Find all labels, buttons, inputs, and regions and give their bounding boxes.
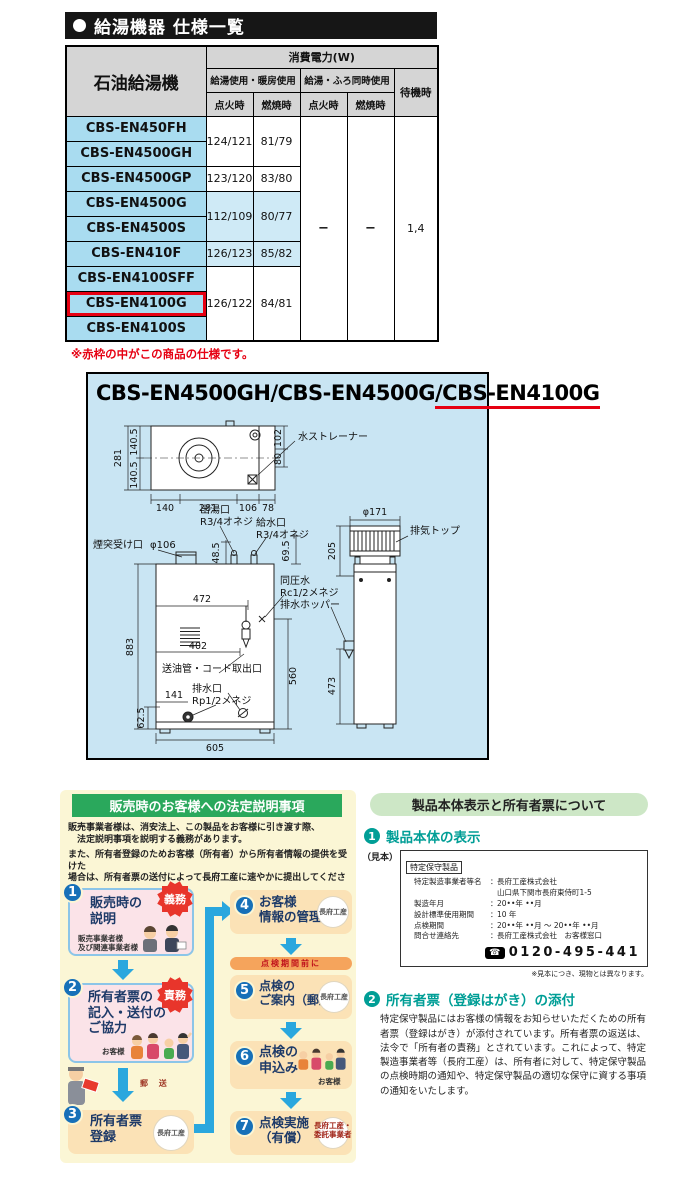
dim-102: 102 [273, 429, 284, 447]
product-label-plate: 特定保守製品 特定製造事業者等名：長府工産株式会社 山口県下関市長府東侍町1-5… [400, 850, 648, 967]
subsection-2-number: 2 [364, 991, 380, 1007]
spec-section-title: 給湯機器 仕様一覧 [94, 13, 245, 38]
step-2-title: 所有者票の 記入・送付の ご協力 [88, 990, 166, 1037]
chofu-kosan-badge: 長府工産 [154, 1116, 188, 1150]
spec-title-bar: 給湯機器 仕様一覧 [65, 12, 437, 39]
cell-dash: − [300, 116, 347, 341]
label-drain-hopper: 排水ホッパー [280, 598, 340, 611]
legal-explanation-panel: 販売時のお客様への法定説明事項 販売事業者様は、消安法上、この製品をお客様に引き… [60, 790, 356, 1163]
step-2-number: 2 [62, 977, 83, 998]
label-drain-thread: Rp1/2メネジ [192, 695, 251, 707]
dim-605: 605 [206, 743, 224, 754]
dimension-drawing: 281 140.5 140.5 102 80 140 281 106 78 水ス… [88, 414, 489, 759]
col-ignition-1: 点火時 [206, 92, 253, 116]
plate-field-value: 長府工産株式会社 お客様窓口 [497, 931, 642, 942]
model-name: CBS-EN4500G [66, 191, 206, 216]
step-4-number: 4 [234, 895, 255, 916]
owner-card-section: 製品本体表示と所有者票について 1 製品本体の表示 （見本） 特定保守製品 特定… [362, 793, 649, 1099]
dim-883: 883 [125, 638, 136, 656]
family-illustration [296, 1045, 348, 1075]
dim-140-5-a: 140.5 [129, 428, 140, 455]
cell-dash: − [347, 116, 394, 341]
label-drain-outlet: 排水口 [192, 682, 222, 695]
label-chimney-diameter: φ106 [150, 540, 176, 551]
step-6-number: 6 [234, 1046, 255, 1067]
dim-69-5: 69.5 [281, 540, 292, 561]
cell-value: 123/120 [206, 166, 253, 191]
label-water-inlet: 給水口 [256, 516, 286, 529]
plate-field-key: 特定製造事業者等名 [414, 877, 490, 888]
col-group1: 給湯使用・暖房使用 [206, 68, 300, 92]
spec-note: ※赤枠の中がこの商品の仕様です。 [65, 346, 437, 362]
step-3-number: 3 [62, 1104, 83, 1125]
step-3-title: 所有者票 登録 [90, 1114, 142, 1145]
step-4-box: 4 お客様 情報の管理 長府工産 [230, 890, 352, 934]
step-6-caption: お客様 [318, 1077, 341, 1086]
phone-number: 0120-495-441 [509, 945, 640, 960]
label-hot-water-outlet: 出湯口 [200, 503, 230, 516]
cell-standby-value: 1,4 [394, 116, 438, 341]
people-illustration [136, 924, 190, 954]
step-4-title: お客様 情報の管理 [259, 894, 322, 924]
model-name-highlighted: CBS-EN4100G [66, 291, 206, 316]
cell-value: 83/80 [253, 166, 300, 191]
step-1-caption: 販売事業者様 及び関連事業者様 [78, 934, 138, 953]
owner-subsection-1-heading: 1 製品本体の表示 [364, 826, 649, 846]
mail-send-label: 郵 送 [140, 1078, 171, 1089]
bullet-icon [73, 19, 86, 32]
step-1-title: 販売時の 説明 [90, 896, 142, 927]
dim-140-5-b: 140.5 [129, 461, 140, 488]
dim-560: 560 [288, 667, 299, 685]
step-1-number: 1 [62, 882, 83, 903]
plate-field-value: 20••年 ••月 ～ 20••年 ••月 [497, 921, 642, 932]
chofu-kosan-badge: 長府工産 [319, 982, 349, 1012]
arrow-down-mail-icon [112, 1068, 134, 1102]
plate-field-value: 10 年 [497, 910, 642, 921]
owner-section-title: 製品本体表示と所有者票について [370, 793, 648, 816]
dim-78: 78 [262, 503, 274, 514]
family-illustration [128, 1031, 192, 1063]
dim-205: 205 [327, 542, 338, 560]
specified-maintenance-product-tag: 特定保守製品 [406, 861, 462, 874]
diagram-title-plain: CBS-EN4500GH/CBS-EN4500G [96, 381, 435, 405]
model-name: CBS-EN450FH [66, 116, 206, 141]
plate-field-sep [490, 888, 497, 899]
dim-106: 106 [239, 503, 257, 514]
label-water-strainer: 水ストレーナー [298, 431, 368, 443]
plate-field-key: 製造年月 [414, 899, 490, 910]
before-inspection-bar: 点検期間前に [230, 957, 352, 970]
spec-section: 給湯機器 仕様一覧 石油給湯機 消費電力(W) 給湯使用・暖房使用 給湯・ふろ同… [65, 12, 437, 362]
model-name: CBS-EN410F [66, 241, 206, 266]
dimension-diagram-panel: CBS-EN4500GH/CBS-EN4500G/CBS-EN4100G [86, 372, 489, 760]
dim-473: 473 [327, 677, 338, 695]
sample-label: （見本） [362, 850, 398, 863]
dim-402: 402 [189, 641, 207, 652]
plate-field-key: 点検期間 [414, 921, 490, 932]
arrow-down-icon [280, 938, 302, 954]
arrow-down-icon [112, 960, 134, 980]
step-6-title: 点検の 申込み [259, 1045, 298, 1076]
dim-141: 141 [165, 690, 183, 701]
col-standby: 待機時 [394, 68, 438, 116]
step-6-box: 6 点検の 申込み お客様 [230, 1041, 352, 1089]
label-equal-pressure-thread: Rc1/2メネジ [280, 587, 339, 599]
table-row: CBS-EN450FH 124/121 81/79 − − 1,4 [66, 116, 438, 141]
plate-field-sep: ： [490, 910, 497, 921]
subsection-2-title: 所有者票（登録はがき）の添付 [386, 989, 575, 1009]
step-2-caption: お客様 [102, 1047, 125, 1056]
plate-field-sep: ： [490, 899, 497, 910]
flow-connector [205, 907, 222, 916]
dim-phi-171: φ171 [363, 507, 387, 518]
col-power: 消費電力(W) [206, 46, 438, 68]
plate-field-value: 山口県下関市長府東侍町1-5 [497, 888, 642, 899]
plate-field-sep: ： [490, 877, 497, 888]
step-5-number: 5 [234, 980, 255, 1001]
step-7-org-caption: 長府工産・ 委託事業者 [314, 1121, 352, 1140]
model-name: CBS-EN4100SFF [66, 266, 206, 291]
legal-panel-title: 販売時のお客様への法定説明事項 [72, 794, 342, 817]
dim-140: 140 [156, 503, 174, 514]
cell-value: 81/79 [253, 116, 300, 166]
cell-value: 112/109 [206, 191, 253, 241]
label-chimney-port: 煙突受け口 [93, 538, 143, 551]
label-inlet-thread: R3/4オネジ [256, 529, 309, 541]
plate-field-sep: ： [490, 921, 497, 932]
plate-field-value: 20••年 ••月 [497, 899, 642, 910]
col-product: 石油給湯機 [66, 46, 206, 116]
model-name: CBS-EN4100S [66, 316, 206, 341]
label-exhaust-top: 排気トップ [410, 524, 460, 537]
cell-value: 80/77 [253, 191, 300, 241]
plate-field-sep: ： [490, 931, 497, 942]
cell-value: 85/82 [253, 241, 300, 266]
step-5-box: 5 点検の ご案内（郵送） 長府工産 [230, 975, 352, 1019]
phone-row: ☎ 0120-495-441 [406, 945, 642, 960]
arrow-down-icon [280, 1022, 302, 1038]
model-name: CBS-EN4500GH [66, 141, 206, 166]
model-name: CBS-EN4500S [66, 216, 206, 241]
dim-80: 80 [273, 453, 284, 465]
step-3-box: 所有者票 登録 長府工産 [68, 1110, 194, 1154]
plate-field-value: 長府工産株式会社 [497, 877, 642, 888]
dim-472: 472 [193, 594, 211, 605]
dim-48-5: 48.5 [211, 542, 222, 563]
cell-value: 126/122 [206, 266, 253, 341]
step-7-title: 点検実施 （有償） [259, 1115, 309, 1145]
label-outlet-thread: R3/4オネジ [200, 516, 253, 528]
diagram-title: CBS-EN4500GH/CBS-EN4500G/CBS-EN4100G [88, 374, 487, 405]
cell-value: 84/81 [253, 266, 300, 341]
step-7-number: 7 [234, 1116, 255, 1137]
obligation-badge: 義務 [158, 882, 192, 916]
plate-field-key: 設計標準使用期間 [414, 910, 490, 921]
col-ignition-2: 点火時 [300, 92, 347, 116]
model-name: CBS-EN4500GP [66, 166, 206, 191]
diagram-title-highlight: /CBS-EN4100G [435, 381, 600, 409]
plate-fields: 特定製造事業者等名：長府工産株式会社 山口県下関市長府東侍町1-5 製造年月：2… [414, 877, 642, 942]
dim-62-5: 62.5 [136, 707, 147, 728]
cell-value: 124/121 [206, 116, 253, 166]
dim-281: 281 [113, 449, 124, 467]
chofu-kosan-badge: 長府工産 [318, 897, 348, 927]
owner-card-description: 特定保守製品にはお客様の情報をお知らせいただくための所有者票（登録はがき）が添付… [380, 1013, 646, 1099]
product-spec-page: 給湯機器 仕様一覧 石油給湯機 消費電力(W) 給湯使用・暖房使用 給湯・ふろ同… [0, 0, 700, 1200]
flow-connector [205, 907, 214, 1133]
plate-field-key [414, 888, 490, 899]
col-burning-2: 燃焼時 [347, 92, 394, 116]
spec-table: 石油給湯機 消費電力(W) 給湯使用・暖房使用 給湯・ふろ同時使用 待機時 点火… [65, 45, 439, 342]
cell-value: 126/123 [206, 241, 253, 266]
label-oil-pipe-cord-outlet: 送油管・コード取出口 [162, 662, 262, 675]
badge-label: 責務 [158, 978, 192, 1012]
arrow-down-icon [280, 1092, 302, 1108]
plate-field-key: 問合せ連絡先 [414, 931, 490, 942]
subsection-1-title: 製品本体の表示 [386, 826, 481, 846]
col-burning-1: 燃焼時 [253, 92, 300, 116]
owner-subsection-2-heading: 2 所有者票（登録はがき）の添付 [364, 989, 649, 1009]
badge-label: 義務 [158, 882, 192, 916]
duty-badge: 責務 [158, 978, 192, 1012]
legal-intro-1: 販売事業者様は、消安法上、この製品をお客様に引き渡す際、 法定説明事項を説明する… [68, 823, 352, 846]
step-7-box: 7 点検実施 （有償） 長府工産・ 委託事業者 [230, 1111, 352, 1155]
postman-illustration [60, 1062, 102, 1110]
col-group2: 給湯・ふろ同時使用 [300, 68, 394, 92]
freedial-icon: ☎ [485, 947, 505, 959]
plate-note: ※見本につき、現物とは異なります。 [362, 969, 648, 979]
label-equal-pressure-water: 同圧水 [280, 575, 310, 587]
subsection-1-number: 1 [364, 828, 380, 844]
